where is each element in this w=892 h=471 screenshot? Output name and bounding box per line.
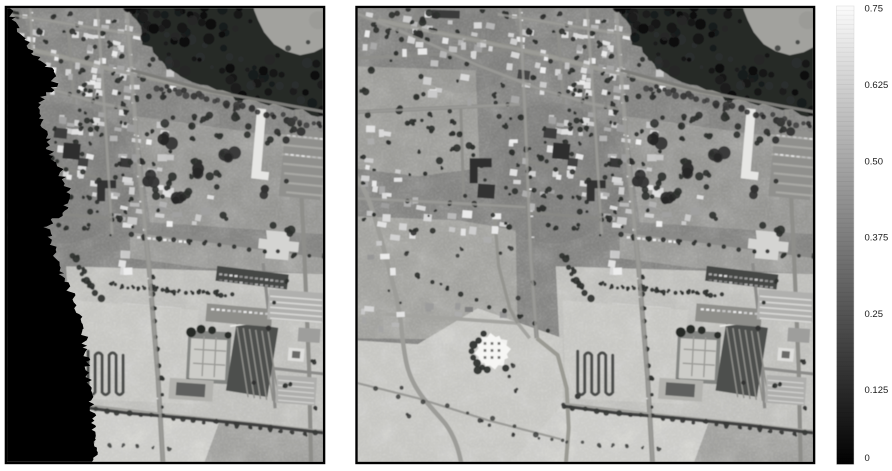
svg-text:0.375: 0.375 xyxy=(865,233,889,244)
svg-text:0.50: 0.50 xyxy=(865,156,884,167)
svg-text:0.25: 0.25 xyxy=(865,309,884,320)
svg-text:0: 0 xyxy=(865,453,870,464)
svg-text:0.625: 0.625 xyxy=(865,80,889,91)
svg-text:0.75: 0.75 xyxy=(865,4,884,15)
svg-text:0.125: 0.125 xyxy=(865,385,889,396)
